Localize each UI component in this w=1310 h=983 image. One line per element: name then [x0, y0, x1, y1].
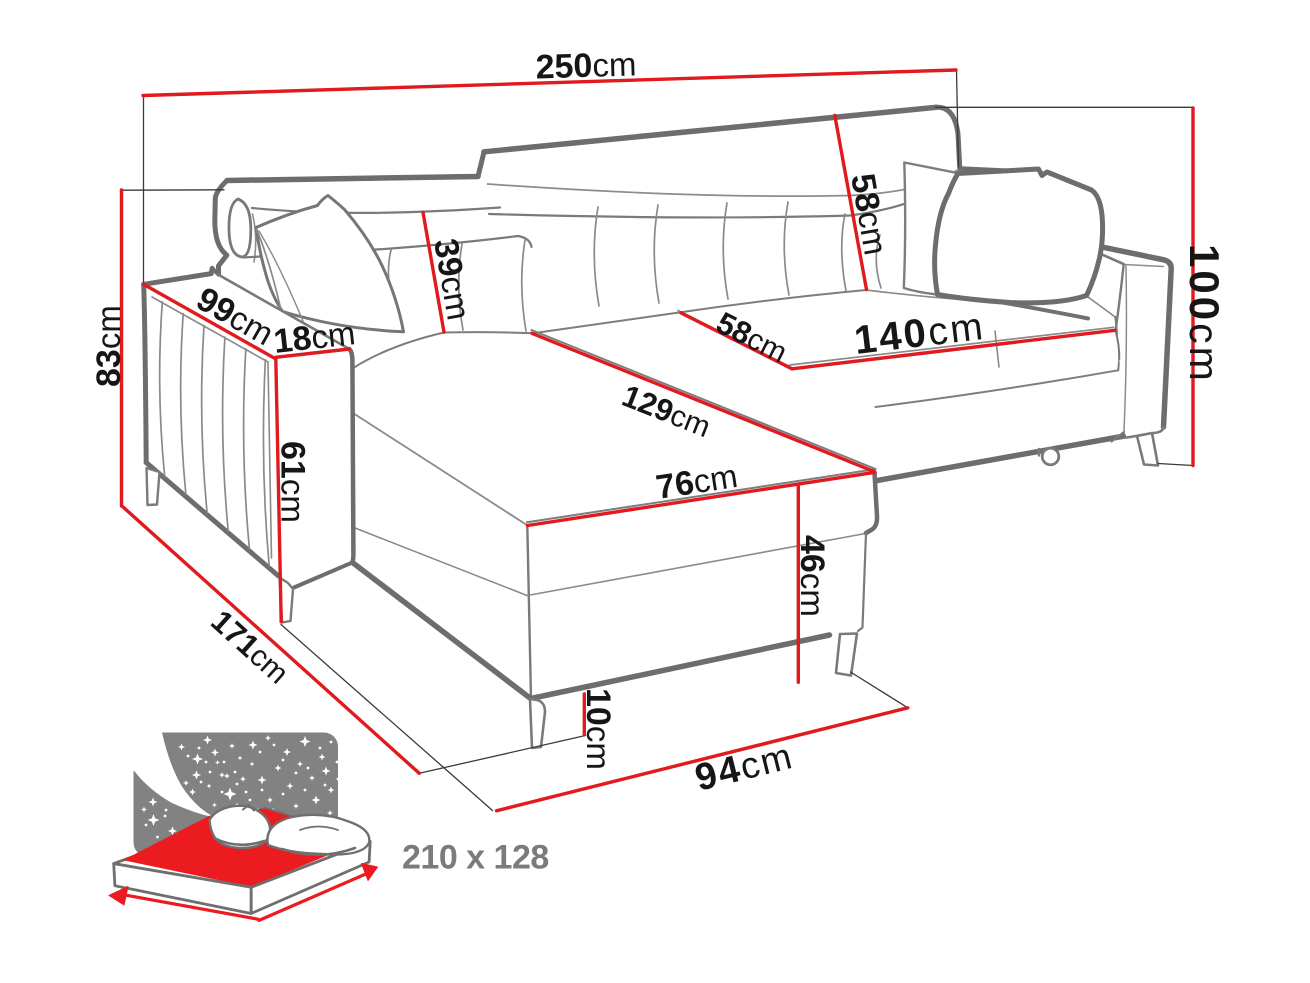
- svg-text:250cm: 250cm: [535, 45, 637, 86]
- svg-text:94cm: 94cm: [691, 735, 798, 800]
- svg-text:140cm: 140cm: [852, 304, 987, 363]
- svg-text:210 x 128: 210 x 128: [402, 839, 549, 877]
- svg-text:46cm: 46cm: [793, 535, 831, 617]
- svg-text:76cm: 76cm: [653, 457, 740, 507]
- svg-text:61cm: 61cm: [274, 441, 312, 523]
- svg-text:100cm: 100cm: [1181, 244, 1228, 384]
- svg-text:83cm: 83cm: [90, 305, 128, 387]
- svg-text:58cm: 58cm: [711, 305, 793, 370]
- svg-text:10cm: 10cm: [579, 688, 617, 770]
